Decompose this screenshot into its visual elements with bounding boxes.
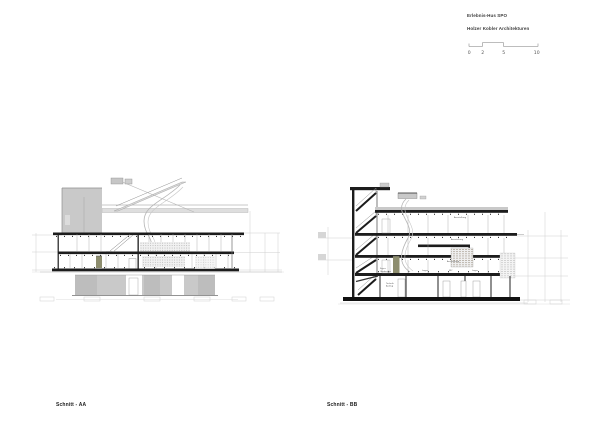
bb-room-label-foyer: Foyer	[380, 267, 386, 270]
aa-core-wall	[138, 234, 139, 270]
aa-interior-stair	[106, 235, 133, 253]
project-title: Erlebnis-Hus SPO	[467, 9, 529, 22]
bb-mezzanine-slab	[418, 245, 470, 248]
bb-ground-slab	[355, 273, 510, 276]
aa-mid-slab	[58, 252, 234, 255]
bb-stair-flights	[356, 193, 376, 295]
bb-room-label-lager-1: Lager	[422, 269, 428, 272]
aa-roof-walkway	[102, 205, 248, 213]
aa-perforated-facade	[140, 242, 215, 269]
title-block: Erlebnis-Hus SPO Holzer Kobler Architekt…	[467, 9, 529, 35]
bb-roof-slab	[375, 210, 508, 213]
aa-stair-tower	[62, 188, 102, 233]
bb-floor-label-3: Ausstellung	[447, 260, 460, 263]
aa-doors	[96, 256, 136, 269]
architect-name: Holzer Kobler Architekturen	[467, 22, 529, 35]
aa-left-cut-wall	[58, 234, 59, 270]
bb-basement-rooms	[340, 276, 528, 303]
bb-basement-label-2: Aufzug	[386, 285, 394, 288]
drawing-sheet: Erlebnis-Hus SPO Holzer Kobler Architekt…	[0, 0, 600, 425]
bb-floor3-slab	[355, 255, 508, 258]
scale-tick-2: 2	[481, 50, 484, 56]
scale-tick-5: 5	[502, 50, 505, 56]
bb-floor2-slab	[355, 233, 517, 236]
scale-bar-line	[469, 43, 538, 47]
bb-roof	[375, 193, 508, 214]
section-aa-drawing	[32, 175, 284, 307]
bb-olive-door	[393, 256, 400, 273]
scale-tick-10: 10	[534, 50, 540, 56]
bb-room-label-lager-2: Lager	[472, 269, 478, 272]
caption-schnitt-aa: Schnitt - AA	[56, 402, 86, 408]
bb-floor-label-2: Ausstellung	[451, 238, 464, 241]
aa-exterior-stair	[111, 178, 194, 212]
bb-rooftop-box	[398, 193, 417, 199]
scale-tick-0: 0	[468, 50, 471, 56]
scale-bar: 0 2 5 10	[467, 40, 545, 57]
aa-olive-door	[96, 256, 102, 268]
bb-tower-roof	[350, 187, 390, 190]
caption-schnitt-bb: Schnitt - BB	[327, 402, 357, 408]
aa-basement	[40, 272, 282, 296]
bb-floor-label-1: Ausstellung	[454, 216, 467, 219]
aa-rooftop-box-2	[125, 179, 132, 184]
aa-basement-door	[129, 278, 138, 295]
bb-room-label-garderobe: Garderobe	[380, 270, 392, 273]
bb-foundation	[343, 297, 520, 301]
bb-floor-slabs	[355, 233, 524, 282]
aa-roof-slab	[53, 233, 244, 236]
bb-interior-columns	[382, 215, 504, 273]
bb-room-label-wc: WC	[449, 270, 453, 272]
aa-rooftop-box	[111, 178, 123, 184]
bb-tower-wall	[352, 190, 354, 297]
bb-stair-tower	[350, 183, 390, 297]
section-bb-drawing: Ausstellung Ausstellung Ausstellung Foye…	[318, 172, 570, 307]
